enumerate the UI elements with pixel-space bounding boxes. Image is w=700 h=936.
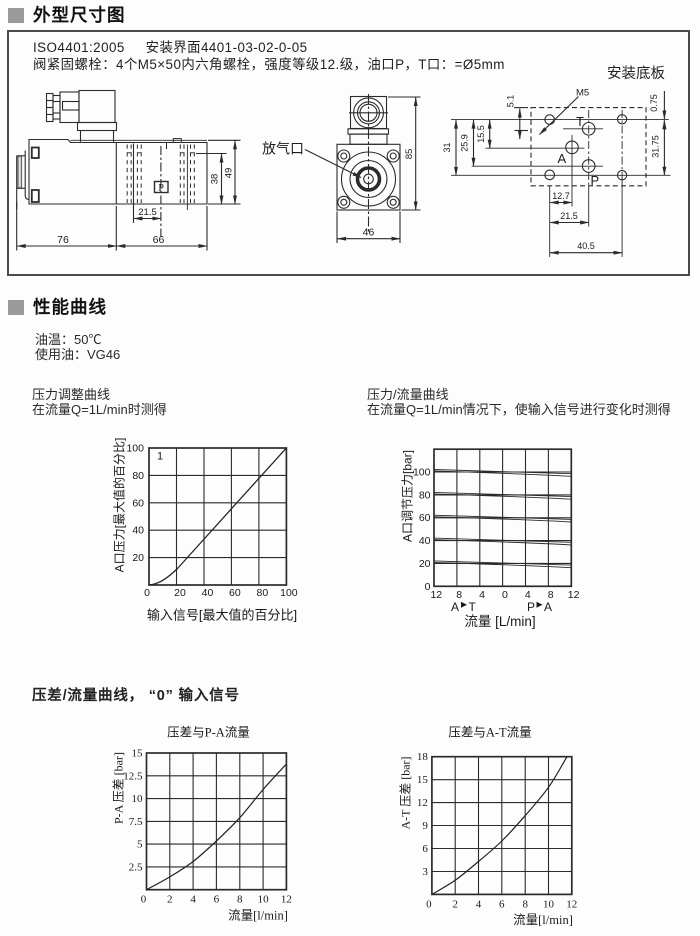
svg-text:12: 12 bbox=[417, 797, 428, 809]
svg-text:4: 4 bbox=[190, 894, 196, 906]
svg-text:放气口: 放气口 bbox=[262, 142, 304, 158]
svg-text:40.5: 40.5 bbox=[577, 241, 595, 251]
svg-text:A口压力[最大值的百分比]: A口压力[最大值的百分比] bbox=[112, 438, 127, 573]
svg-text:21.5: 21.5 bbox=[138, 207, 157, 218]
svg-text:12: 12 bbox=[281, 894, 292, 906]
svg-text:4: 4 bbox=[476, 898, 482, 910]
svg-text:输入信号[最大值的百分比]: 输入信号[最大值的百分比] bbox=[147, 608, 297, 623]
svg-text:40: 40 bbox=[202, 587, 214, 599]
svg-text:66: 66 bbox=[153, 234, 165, 246]
svg-text:0.75: 0.75 bbox=[649, 94, 659, 112]
svg-text:压差与P-A流量: 压差与P-A流量 bbox=[167, 726, 250, 740]
svg-text:12: 12 bbox=[566, 898, 577, 910]
svg-text:9: 9 bbox=[422, 820, 428, 832]
svg-text:2: 2 bbox=[452, 898, 458, 910]
svg-text:12: 12 bbox=[568, 589, 580, 601]
svg-text:T: T bbox=[576, 114, 584, 129]
svg-text:18: 18 bbox=[417, 751, 429, 763]
svg-text:60: 60 bbox=[229, 587, 241, 599]
svg-text:A: A bbox=[544, 600, 552, 614]
svg-text:100: 100 bbox=[413, 467, 431, 479]
svg-text:流量[l/min]: 流量[l/min] bbox=[228, 909, 288, 923]
svg-text:8: 8 bbox=[522, 898, 528, 910]
svg-text:76: 76 bbox=[57, 234, 69, 246]
svg-text:A口调节压力[bar]: A口调节压力[bar] bbox=[401, 450, 415, 542]
svg-text:85: 85 bbox=[404, 149, 415, 160]
svg-text:6: 6 bbox=[422, 843, 428, 855]
svg-text:2: 2 bbox=[167, 894, 173, 906]
svg-text:3: 3 bbox=[422, 866, 428, 878]
svg-text:49: 49 bbox=[224, 168, 235, 179]
svg-text:7.5: 7.5 bbox=[129, 816, 143, 828]
svg-text:40: 40 bbox=[132, 525, 144, 537]
svg-text:0: 0 bbox=[426, 898, 432, 910]
svg-text:8: 8 bbox=[548, 589, 554, 601]
svg-text:6: 6 bbox=[499, 898, 505, 910]
svg-text:流量 [L/min]: 流量 [L/min] bbox=[464, 614, 535, 629]
svg-text:46: 46 bbox=[363, 227, 375, 239]
svg-text:100: 100 bbox=[280, 587, 298, 599]
svg-text:压差与A-T流量: 压差与A-T流量 bbox=[448, 726, 531, 740]
svg-text:20: 20 bbox=[419, 558, 431, 570]
svg-text:15.5: 15.5 bbox=[476, 125, 486, 143]
svg-text:60: 60 bbox=[132, 497, 144, 509]
svg-text:A: A bbox=[451, 600, 459, 614]
svg-text:P: P bbox=[158, 183, 164, 194]
svg-text:15: 15 bbox=[132, 748, 144, 760]
svg-text:4: 4 bbox=[479, 589, 485, 601]
svg-text:10: 10 bbox=[258, 894, 270, 906]
svg-text:21.5: 21.5 bbox=[560, 211, 578, 221]
svg-text:38: 38 bbox=[210, 174, 221, 185]
svg-text:P-A 压差 [bar]: P-A 压差 [bar] bbox=[112, 752, 126, 824]
svg-text:6: 6 bbox=[214, 894, 220, 906]
svg-text:20: 20 bbox=[174, 587, 186, 599]
svg-text:1: 1 bbox=[157, 451, 163, 463]
svg-text:A-T 压差 [bar]: A-T 压差 [bar] bbox=[399, 756, 413, 829]
svg-text:60: 60 bbox=[419, 512, 431, 524]
svg-text:4: 4 bbox=[525, 589, 531, 601]
svg-text:20: 20 bbox=[132, 552, 144, 564]
svg-text:12: 12 bbox=[430, 589, 442, 601]
svg-text:5.1: 5.1 bbox=[506, 95, 516, 108]
svg-text:80: 80 bbox=[257, 587, 269, 599]
svg-text:31: 31 bbox=[442, 142, 452, 152]
svg-text:80: 80 bbox=[132, 470, 144, 482]
svg-text:31.75: 31.75 bbox=[651, 135, 661, 158]
svg-text:40: 40 bbox=[419, 535, 431, 547]
svg-text:P: P bbox=[591, 173, 600, 188]
svg-text:0: 0 bbox=[502, 589, 508, 601]
svg-text:10: 10 bbox=[132, 793, 144, 805]
svg-text:A: A bbox=[558, 151, 567, 166]
svg-text:0: 0 bbox=[144, 587, 150, 599]
svg-text:15: 15 bbox=[417, 774, 429, 786]
svg-text:8: 8 bbox=[237, 894, 243, 906]
svg-text:2.5: 2.5 bbox=[129, 861, 143, 873]
svg-text:流量[l/min]: 流量[l/min] bbox=[513, 913, 573, 927]
svg-text:P: P bbox=[527, 600, 535, 614]
svg-text:25.9: 25.9 bbox=[460, 134, 470, 152]
svg-text:0: 0 bbox=[141, 894, 147, 906]
svg-text:5: 5 bbox=[137, 839, 143, 851]
svg-text:12.7: 12.7 bbox=[552, 191, 570, 201]
svg-text:8: 8 bbox=[456, 589, 462, 601]
svg-text:12.5: 12.5 bbox=[123, 770, 143, 782]
svg-text:100: 100 bbox=[126, 443, 144, 455]
svg-text:80: 80 bbox=[419, 489, 431, 501]
svg-text:T: T bbox=[469, 600, 477, 614]
svg-text:10: 10 bbox=[543, 898, 555, 910]
